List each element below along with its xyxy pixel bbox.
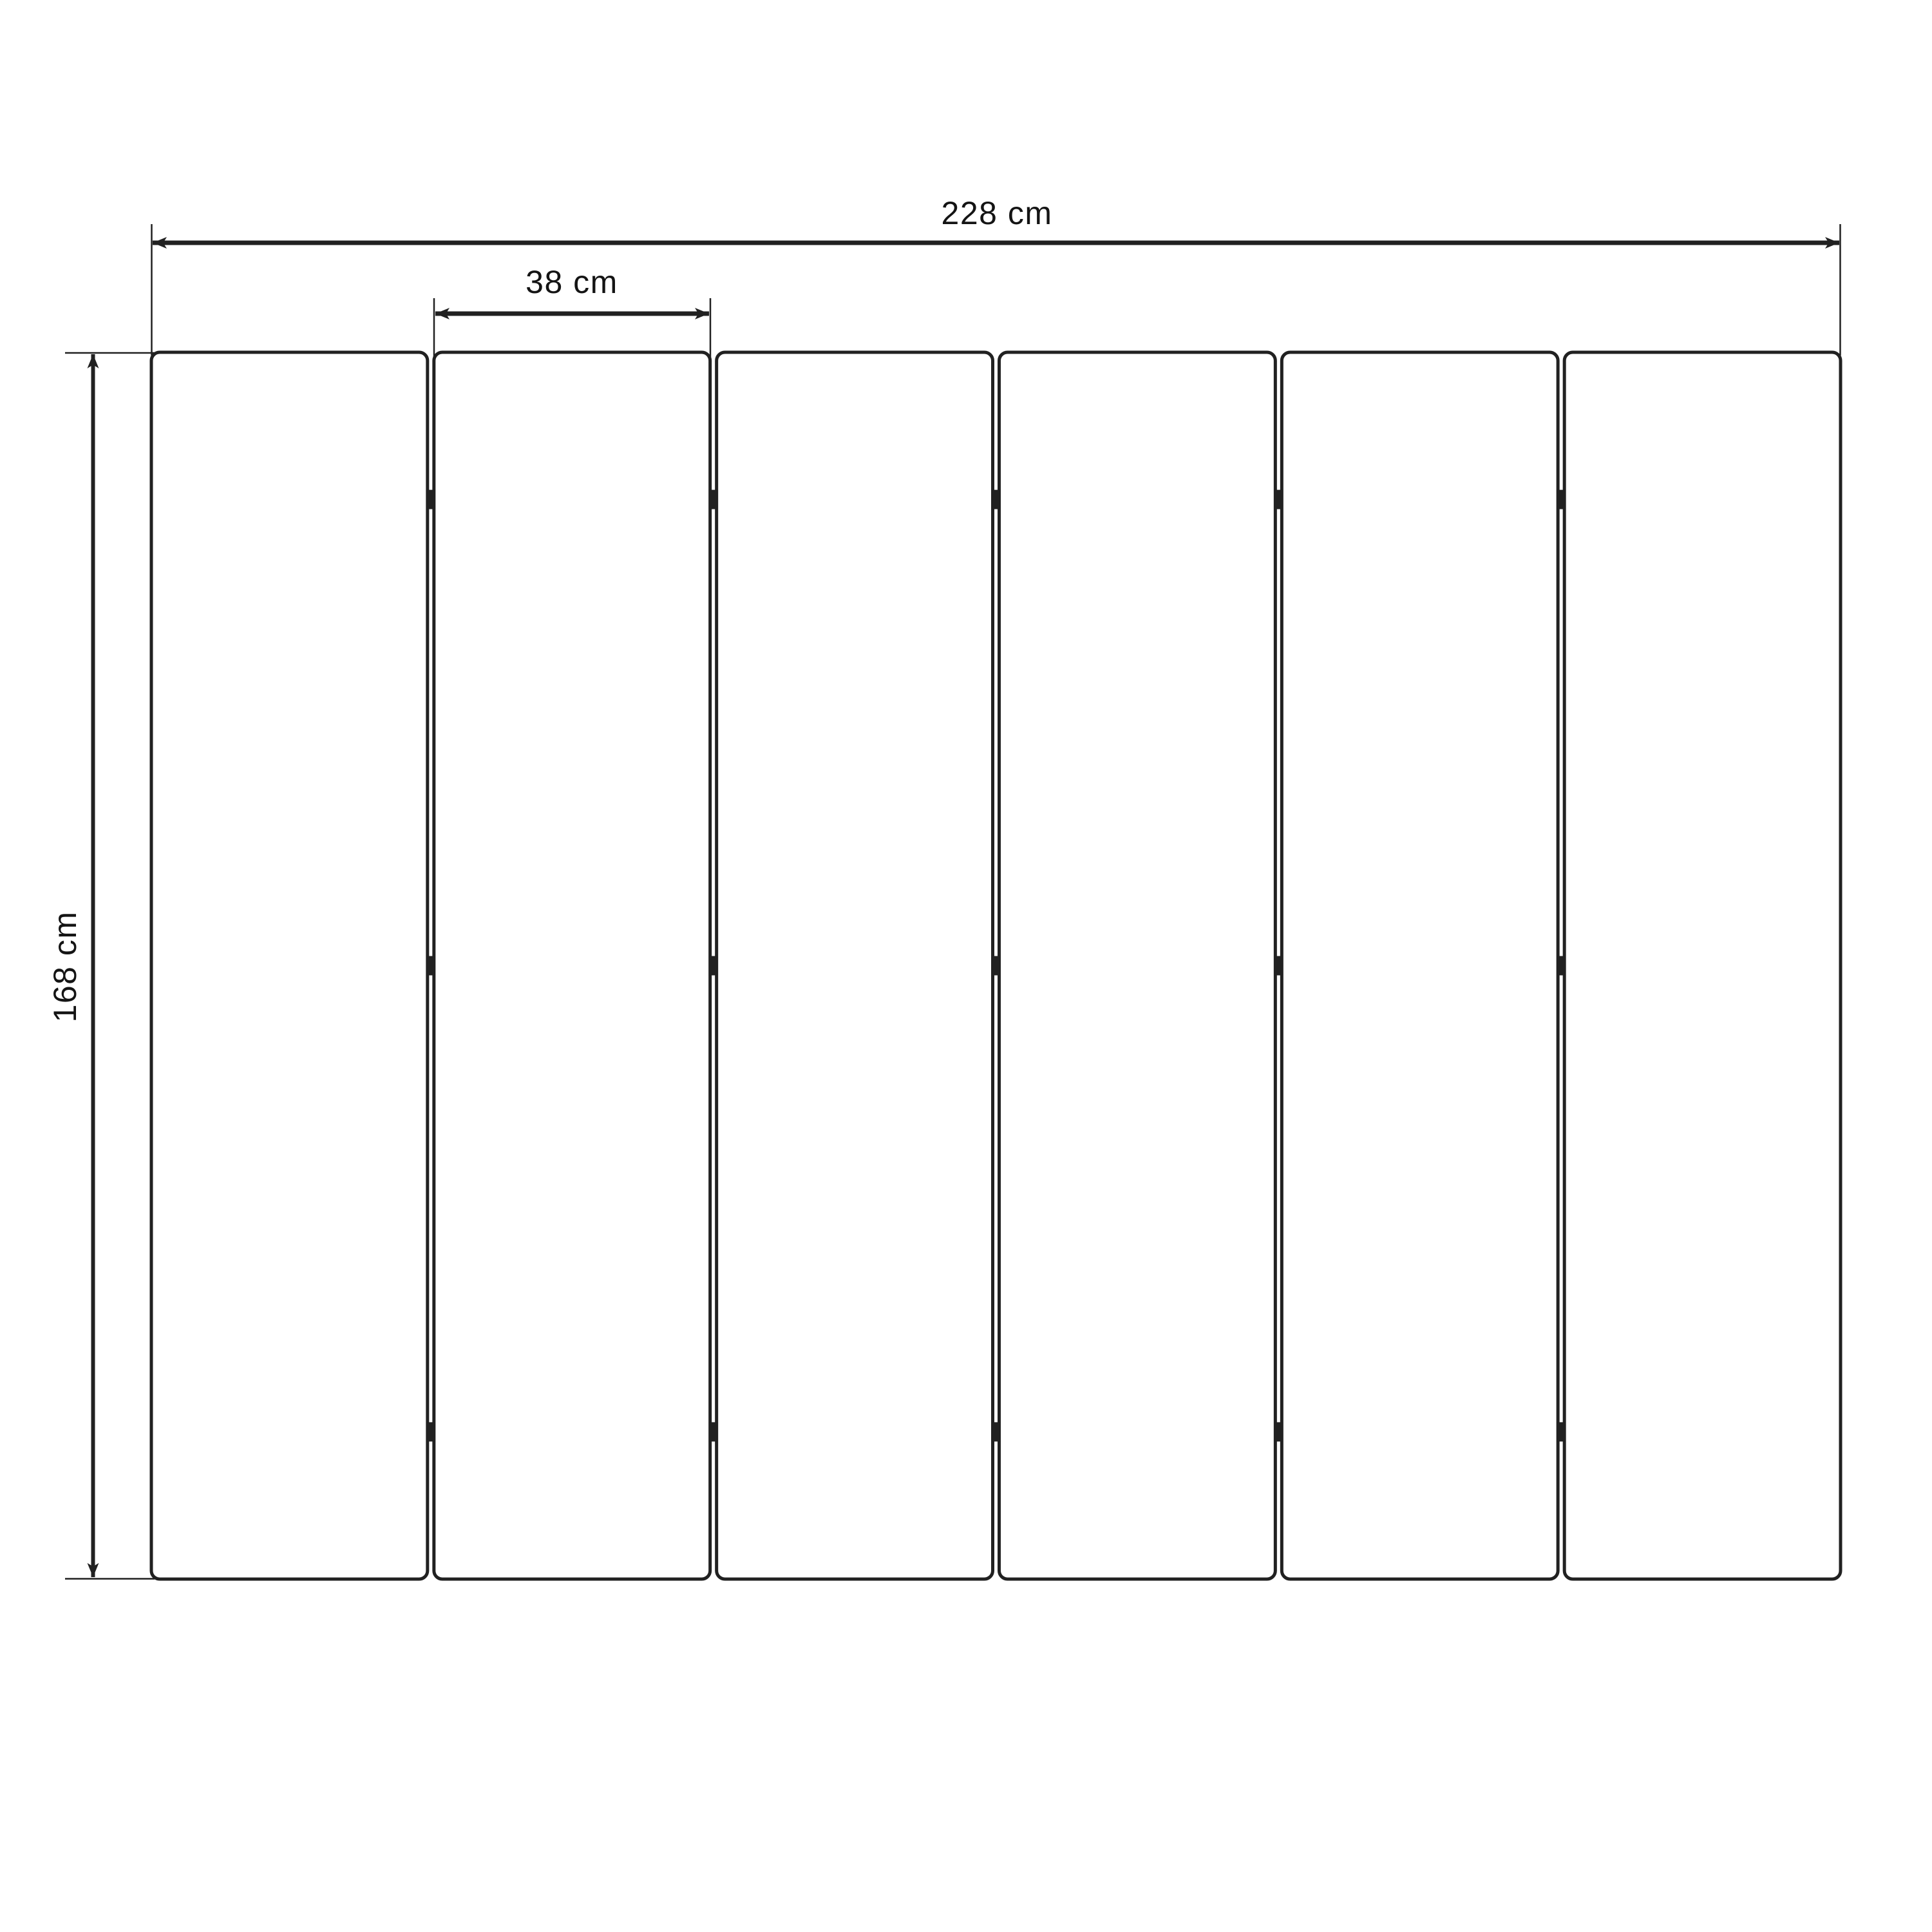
- panel: [151, 352, 428, 1579]
- hinge-mark: [426, 1422, 435, 1441]
- hinge-mark: [426, 956, 435, 976]
- hinge-mark: [709, 956, 718, 976]
- height-dimension: 168 cm: [47, 353, 155, 1579]
- hinge-mark: [426, 490, 435, 509]
- drawing-canvas: 228 cm 38 cm 168 cm: [0, 0, 1932, 1932]
- hinge-mark: [1274, 1422, 1283, 1441]
- hinge-mark: [1274, 490, 1283, 509]
- panel: [717, 352, 993, 1579]
- panel: [1282, 352, 1558, 1579]
- hinge-mark: [1274, 956, 1283, 976]
- hinge-mark: [992, 490, 1001, 509]
- panel-width-label: 38 cm: [526, 264, 618, 300]
- panel-width-dimension: 38 cm: [434, 264, 710, 358]
- panel: [1564, 352, 1841, 1579]
- hinge-mark: [992, 1422, 1001, 1441]
- dimension-drawing: 228 cm 38 cm 168 cm: [0, 0, 1932, 1932]
- hinge-mark: [709, 490, 718, 509]
- hinge-mark: [709, 1422, 718, 1441]
- hinge-mark: [992, 956, 1001, 976]
- total-width-label: 228 cm: [942, 195, 1053, 231]
- height-label: 168 cm: [47, 911, 83, 1023]
- hinge-mark: [1557, 490, 1566, 509]
- hinge-mark: [1557, 956, 1566, 976]
- total-width-dimension: 228 cm: [152, 195, 1841, 355]
- panel: [434, 352, 710, 1579]
- hinge-mark: [1557, 1422, 1566, 1441]
- panel: [999, 352, 1276, 1579]
